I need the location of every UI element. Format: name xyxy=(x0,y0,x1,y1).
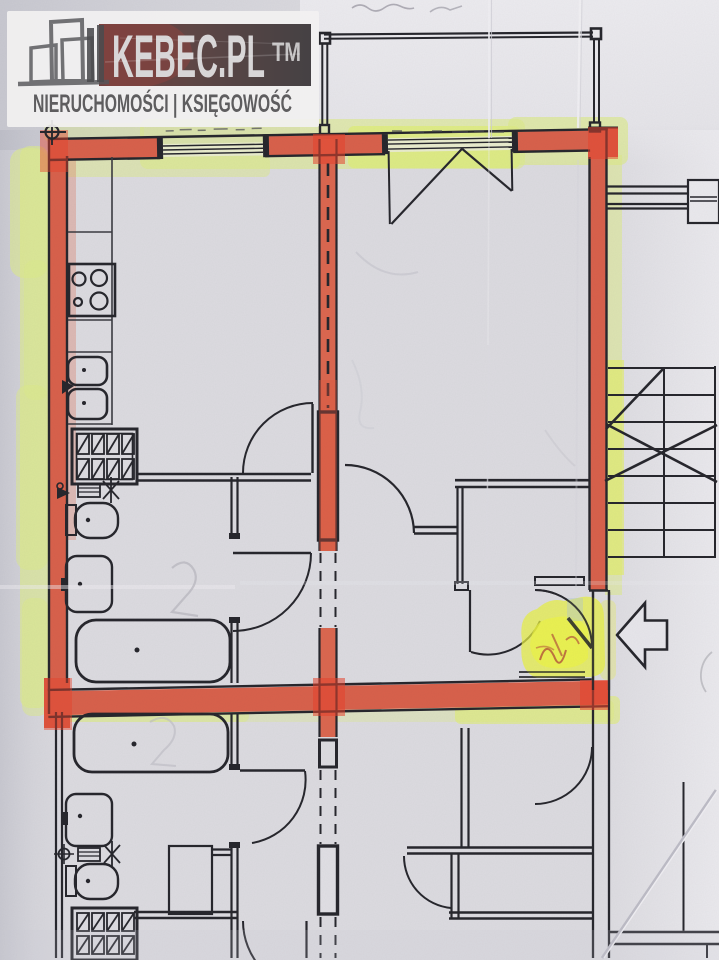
svg-text:TM: TM xyxy=(272,37,301,67)
svg-text:NIERUCHOMOŚCI | KSIĘGOWOŚĆ: NIERUCHOMOŚCI | KSIĘGOWOŚĆ xyxy=(33,88,292,118)
